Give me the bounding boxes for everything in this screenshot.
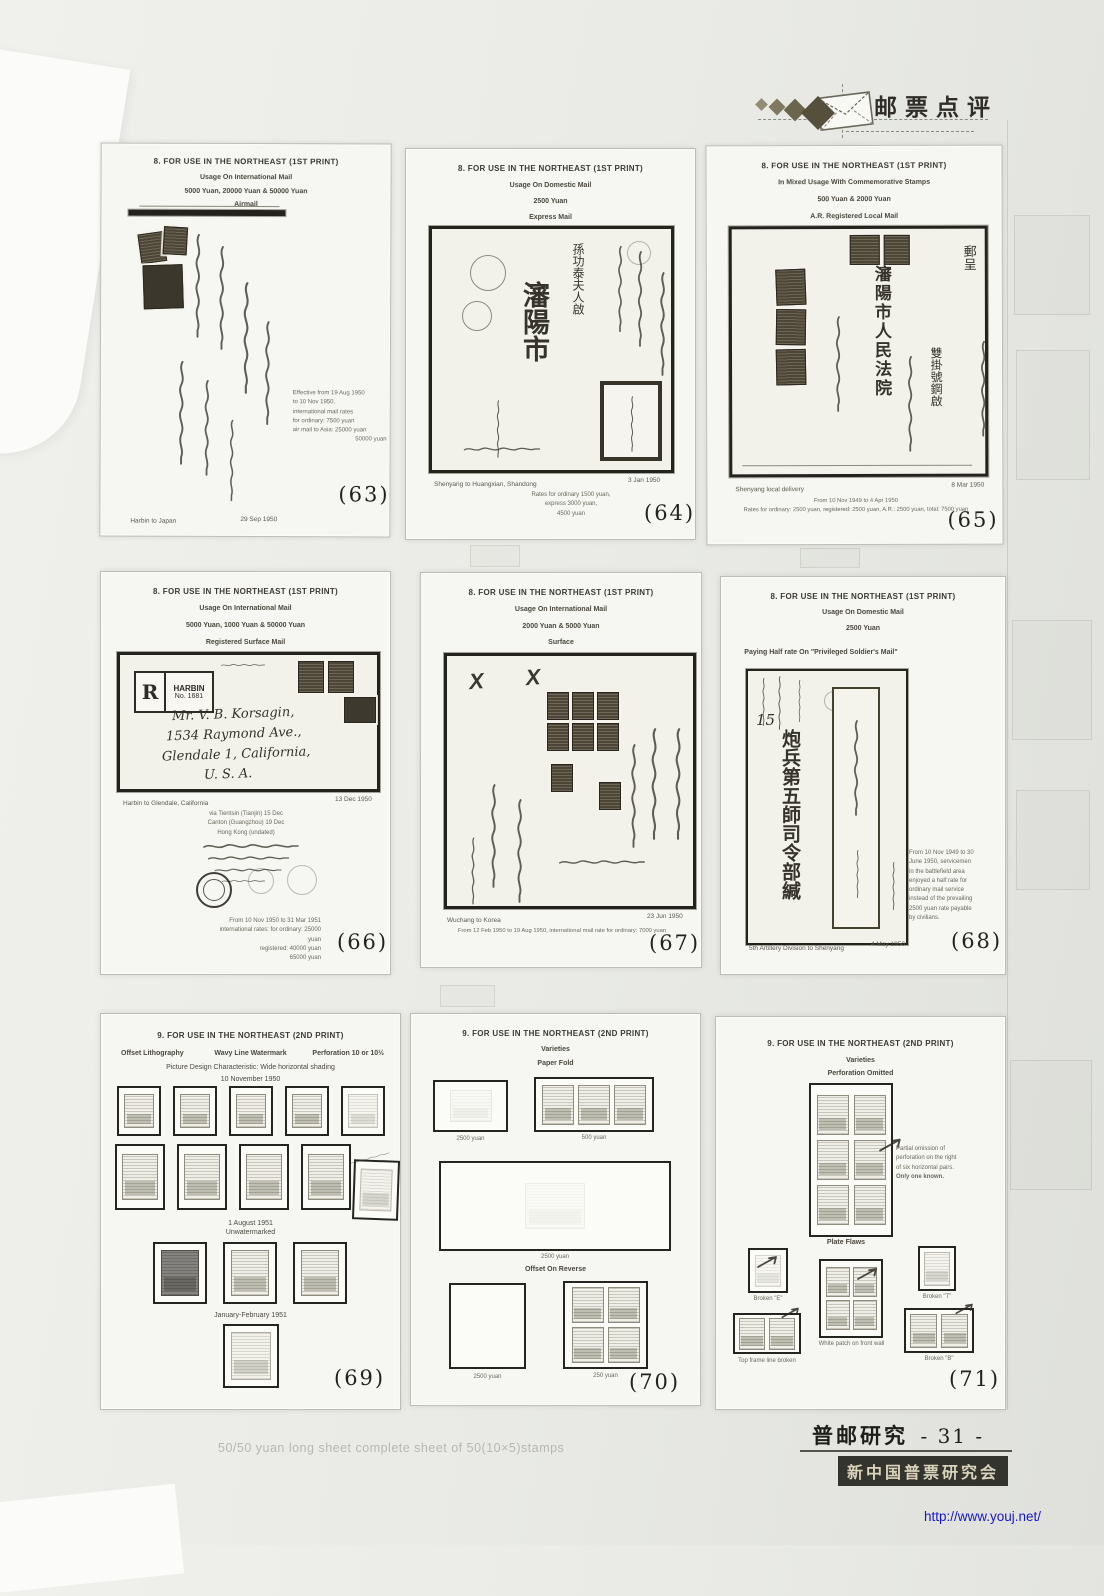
flaw-box-4 bbox=[733, 1313, 801, 1354]
address-panel bbox=[832, 687, 880, 929]
variety-box-perf-omitted bbox=[809, 1083, 893, 1237]
stamp bbox=[359, 1168, 392, 1211]
cover-64: 瀋陽市 孫功泰夫人啟 bbox=[429, 226, 674, 473]
flaw-label: Broken "B" bbox=[906, 1356, 972, 1362]
album-page-64: 8. FOR USE IN THE NORTHEAST (1ST PRINT) … bbox=[405, 148, 696, 540]
stamp bbox=[578, 1085, 610, 1125]
stamp bbox=[292, 1094, 322, 1128]
stamp bbox=[184, 1154, 220, 1200]
page-edge-shadow bbox=[1007, 120, 1008, 1410]
rate-note: From 10 Nov 1950 to 31 Mar 1951 internat… bbox=[216, 917, 321, 963]
page-subtitle: Perforation Omitted bbox=[716, 1070, 1005, 1077]
figure-number: (71) bbox=[949, 1367, 1000, 1391]
variety-box-paperfold-1 bbox=[433, 1080, 508, 1132]
stamp-mount bbox=[301, 1144, 351, 1210]
postmark bbox=[196, 872, 232, 908]
masthead-title: 邮票点评 bbox=[874, 88, 998, 122]
page-subtitle: Usage On International Mail bbox=[101, 605, 390, 612]
page-title: 8. FOR USE IN THE NORTHEAST (1ST PRINT) bbox=[102, 156, 391, 166]
address-line bbox=[742, 465, 972, 467]
stamp bbox=[572, 1327, 604, 1363]
page-subtitle: Varieties bbox=[411, 1046, 700, 1053]
stamp bbox=[163, 226, 189, 255]
page-subtitle: Varieties bbox=[716, 1057, 1005, 1064]
page-subtitle: Airmail bbox=[101, 200, 390, 208]
stamp bbox=[817, 1185, 849, 1225]
stamp bbox=[924, 1252, 950, 1286]
stamp bbox=[161, 1250, 199, 1296]
postmark bbox=[248, 868, 274, 894]
figure-number: (70) bbox=[629, 1370, 680, 1394]
caption-origin: Harbin to Japan bbox=[130, 518, 176, 525]
variety-box-offset-2 bbox=[563, 1281, 648, 1369]
page-subtitle: Usage On International Mail bbox=[421, 606, 701, 613]
flaw-box-2 bbox=[918, 1246, 956, 1291]
page-subtitle: Usage On International Mail bbox=[102, 173, 391, 181]
issue-date-1: 10 November 1950 bbox=[101, 1076, 400, 1083]
stamp-mount bbox=[153, 1242, 207, 1304]
stamp-mount bbox=[285, 1086, 329, 1136]
album-page-66: 8. FOR USE IN THE NORTHEAST (1ST PRINT) … bbox=[100, 571, 391, 975]
stamp bbox=[776, 349, 807, 386]
stamp bbox=[854, 1095, 886, 1135]
album-page-67: 8. FOR USE IN THE NORTHEAST (1ST PRINT) … bbox=[420, 572, 702, 968]
cover-main-characters: 瀋陽市人民法院 bbox=[872, 265, 890, 465]
value-label: 500 yuan bbox=[534, 1135, 654, 1141]
album-page-70: 9. FOR USE IN THE NORTHEAST (2ND PRINT) … bbox=[410, 1013, 701, 1406]
showthrough-caption: 50/50 yuan long sheet complete sheet of … bbox=[218, 1441, 564, 1455]
section-heading: Offset On Reverse bbox=[411, 1266, 700, 1273]
page-subtitle: 2500 Yuan bbox=[406, 198, 695, 205]
stamp bbox=[551, 764, 573, 792]
stamp-mount bbox=[352, 1159, 400, 1221]
value-label: 2500 yuan bbox=[433, 1136, 508, 1142]
page-subtitle: 500 Yuan & 2000 Yuan bbox=[707, 196, 1002, 204]
page-subtitle: A.R. Registered Local Mail bbox=[707, 213, 1002, 221]
site-url-link[interactable]: http://www.youj.net/ bbox=[924, 1509, 1041, 1524]
flaw-label: White patch on front wall bbox=[804, 1341, 899, 1347]
stamp bbox=[301, 1250, 339, 1296]
sender-characters: 炮兵第五師司令部緘 bbox=[780, 729, 799, 941]
caption-origin: Shenyang to Huangxian, Shandong bbox=[434, 481, 537, 488]
page-title: 8. FOR USE IN THE NORTHEAST (1ST PRINT) bbox=[406, 164, 695, 173]
stamp bbox=[941, 1314, 968, 1348]
showthrough-ghost bbox=[440, 985, 495, 1007]
caption-date: 29 Sep 1950 bbox=[240, 516, 277, 523]
stamp bbox=[328, 661, 354, 693]
rate-note: Effective from 19 Aug 1950 to 10 Nov 195… bbox=[293, 389, 387, 445]
caption-date: 23 Jun 1950 bbox=[647, 913, 683, 920]
showthrough-ghost bbox=[1014, 215, 1090, 315]
cover-addressee-characters: 孫功泰夫人啟 bbox=[572, 243, 584, 393]
cover-registered-characters: 雙掛號鋼啟 bbox=[930, 347, 942, 457]
stamp bbox=[547, 723, 569, 751]
showthrough-ghost bbox=[1012, 620, 1092, 740]
flaw-label: Broken "E" bbox=[740, 1296, 796, 1302]
issue-date-2: 1 August 1951 bbox=[101, 1220, 400, 1227]
figure-number: (69) bbox=[334, 1366, 385, 1390]
album-page-65: 8. FOR USE IN THE NORTHEAST (1ST PRINT) … bbox=[705, 145, 1003, 546]
society-name-badge: 新中国普票研究会 bbox=[838, 1456, 1008, 1486]
stamp bbox=[597, 692, 619, 720]
caption-origin: Shenyang local delivery bbox=[735, 486, 804, 493]
diamond-icon bbox=[769, 99, 786, 116]
variety-box-paperfold-3 bbox=[439, 1161, 671, 1251]
caption-origin: Wuchang to Korea bbox=[447, 917, 501, 924]
cover-right-characters: 郵呈 bbox=[962, 245, 975, 305]
footer-rule bbox=[800, 1450, 1012, 1452]
stamp bbox=[450, 1090, 492, 1122]
stamp bbox=[608, 1287, 640, 1323]
stamp bbox=[826, 1300, 850, 1330]
stamp bbox=[572, 723, 594, 751]
showthrough-ghost bbox=[470, 545, 520, 567]
address-line-3: Glendale 1, California, bbox=[162, 744, 311, 764]
variety-box-paperfold-2 bbox=[534, 1077, 654, 1132]
postmark bbox=[462, 301, 492, 331]
stamp bbox=[776, 309, 807, 345]
showthrough-ghost bbox=[800, 548, 860, 568]
stamp bbox=[308, 1154, 344, 1200]
stamp bbox=[124, 1094, 154, 1128]
album-page-71: 9. FOR USE IN THE NORTHEAST (2ND PRINT) … bbox=[715, 1016, 1006, 1410]
showthrough-ghost bbox=[1016, 790, 1090, 890]
value-label: 2500 yuan bbox=[439, 1254, 671, 1260]
stamp bbox=[344, 697, 376, 723]
variety-box-offset-1 bbox=[449, 1283, 526, 1369]
page-subtitle: Registered Surface Mail bbox=[101, 639, 390, 646]
stamp bbox=[180, 1094, 210, 1128]
stamp bbox=[817, 1140, 849, 1180]
album-page-63: 8. FOR USE IN THE NORTHEAST (1ST PRINT) … bbox=[99, 142, 391, 537]
album-page-68: 8. FOR USE IN THE NORTHEAST (1ST PRINT) … bbox=[720, 576, 1006, 975]
page-title: 9. FOR USE IN THE NORTHEAST (2ND PRINT) bbox=[101, 1031, 400, 1040]
scanned-journal-page: { "scan": { "masthead": { "title": "邮票点评… bbox=[0, 0, 1104, 1545]
stamp-mount bbox=[341, 1086, 385, 1136]
stamp bbox=[608, 1327, 640, 1363]
cover-66: R HARBIN No. 1681 Mr. V. B. Korsagin, 15… bbox=[117, 652, 380, 792]
stamp bbox=[572, 692, 594, 720]
showthrough-ghost bbox=[1010, 1060, 1092, 1190]
watermark-note: Unwatermarked bbox=[101, 1229, 400, 1236]
address-line-2: 1534 Raymond Ave., bbox=[166, 725, 302, 745]
stamp bbox=[298, 661, 324, 693]
address-line-4: U. S. A. bbox=[204, 766, 253, 783]
diamond-icon bbox=[755, 98, 768, 111]
stamp bbox=[854, 1185, 886, 1225]
stamp-block bbox=[547, 692, 619, 751]
stamp bbox=[122, 1154, 158, 1200]
stamp bbox=[853, 1300, 877, 1330]
cover-city-characters: 瀋陽市 bbox=[520, 281, 547, 461]
spec-design: Picture Design Characteristic: Wide hori… bbox=[101, 1064, 400, 1071]
stamp bbox=[826, 1267, 850, 1297]
stamp bbox=[817, 1095, 849, 1135]
stamp bbox=[769, 1318, 795, 1350]
express-label-frame bbox=[600, 381, 662, 461]
stamp bbox=[910, 1314, 937, 1348]
cover-65: 瀋陽市人民法院 郵呈 雙掛號鋼啟 bbox=[729, 226, 989, 478]
postmark bbox=[470, 255, 506, 291]
figure-number: (68) bbox=[951, 929, 1002, 953]
figure-number: (63) bbox=[338, 482, 389, 506]
stamp-mount bbox=[173, 1086, 217, 1136]
stamp bbox=[547, 692, 569, 720]
rate-note: From 10 Nov 1949 to 30 June 1950, servic… bbox=[909, 849, 995, 923]
journal-title: 普邮研究 bbox=[812, 1425, 908, 1448]
variety-note: Partial omission of perforation on the r… bbox=[896, 1145, 976, 1182]
stamp-mount bbox=[177, 1144, 227, 1210]
stamp bbox=[231, 1250, 269, 1296]
page-title: 8. FOR USE IN THE NORTHEAST (1ST PRINT) bbox=[421, 588, 701, 597]
value-label: 2500 yuan bbox=[449, 1374, 526, 1380]
stamp-mount bbox=[223, 1324, 279, 1388]
cover-63 bbox=[128, 210, 285, 217]
stamp-mount bbox=[293, 1242, 347, 1304]
figure-number: (67) bbox=[649, 931, 700, 955]
stamp bbox=[850, 235, 880, 265]
stamp-mount bbox=[229, 1086, 273, 1136]
stamp bbox=[597, 723, 619, 751]
album-page-69: 9. FOR USE IN THE NORTHEAST (2ND PRINT) … bbox=[100, 1013, 401, 1410]
page-title: 8. FOR USE IN THE NORTHEAST (1ST PRINT) bbox=[101, 587, 390, 596]
handwritten-cross-marks: X X bbox=[468, 663, 559, 695]
address-line-1: Mr. V. B. Korsagin, bbox=[172, 705, 295, 724]
page-subtitle: 2500 Yuan bbox=[721, 625, 1005, 632]
page-title: 9. FOR USE IN THE NORTHEAST (2ND PRINT) bbox=[411, 1029, 700, 1038]
journal-page-line: 普邮研究 - 31 - bbox=[812, 1420, 984, 1450]
page-subtitle: 5000 Yuan, 20000 Yuan & 50000 Yuan bbox=[102, 187, 391, 195]
cover-68: 15 炮兵第五師司令部緘 bbox=[746, 669, 908, 945]
page-subtitle: Usage On Domestic Mail bbox=[721, 609, 1005, 616]
flaw-label: Top frame line broken bbox=[730, 1358, 804, 1364]
stamp bbox=[599, 782, 621, 810]
stamp-mount bbox=[117, 1086, 161, 1136]
stamp bbox=[236, 1094, 266, 1128]
figure-number: (66) bbox=[337, 930, 388, 954]
caption-date: 13 Dec 1950 bbox=[335, 796, 372, 803]
showthrough-ghost bbox=[1016, 350, 1090, 480]
stamp-mount bbox=[115, 1144, 165, 1210]
page-title: 8. FOR USE IN THE NORTHEAST (1ST PRINT) bbox=[721, 592, 1005, 601]
rate-note: Rates for ordinary 1500 yuan, express 30… bbox=[501, 491, 641, 519]
postmark bbox=[287, 865, 317, 895]
page-subtitle: 5000 Yuan, 1000 Yuan & 50000 Yuan bbox=[101, 622, 390, 629]
page-subtitle: Usage On Domestic Mail bbox=[406, 182, 695, 189]
caption-origin: 5th Artillery Division to Shenyang bbox=[749, 945, 844, 952]
flaw-label: Broken "T" bbox=[912, 1294, 962, 1300]
page-subtitle: 2000 Yuan & 5000 Yuan bbox=[421, 623, 701, 630]
stamp-mount bbox=[223, 1242, 277, 1304]
figure-number: (64) bbox=[644, 501, 695, 525]
route-note: via Tientsin (Tianjin) 15 Dec Canton (Gu… bbox=[161, 810, 331, 838]
rate-note: From 12 Feb 1950 to 19 Aug 1950, interna… bbox=[441, 927, 683, 936]
stamp bbox=[231, 1332, 271, 1380]
registration-number: No. 1681 bbox=[175, 693, 203, 700]
spec-perforation: Perforation 10 or 10½ bbox=[312, 1050, 384, 1057]
page-subtitle: Paying Half rate On "Privileged Soldier'… bbox=[731, 649, 911, 656]
stamp bbox=[884, 235, 910, 265]
stamp bbox=[542, 1085, 574, 1125]
section-heading: Plate Flaws bbox=[776, 1239, 916, 1246]
masthead-dashed-line bbox=[846, 131, 974, 132]
stamp bbox=[775, 269, 806, 306]
registration-r: R bbox=[136, 673, 166, 711]
page-title: 9. FOR USE IN THE NORTHEAST (2ND PRINT) bbox=[716, 1039, 1005, 1048]
cover-67: X X bbox=[444, 653, 696, 909]
caption-date: 3 Jan 1950 bbox=[628, 477, 660, 484]
page-subtitle: Paper Fold bbox=[411, 1060, 700, 1067]
page-subtitle: Surface bbox=[421, 639, 701, 646]
registration-city: HARBIN bbox=[173, 684, 204, 693]
corner-highlight bbox=[0, 1484, 184, 1596]
journal-page-number: - 31 - bbox=[920, 1424, 984, 1448]
stamp bbox=[246, 1154, 282, 1200]
stamp-mount bbox=[239, 1144, 289, 1210]
registration-label: R HARBIN No. 1681 bbox=[134, 671, 214, 713]
issue-date-3: January-February 1951 bbox=[101, 1312, 400, 1319]
caption-date: 4 May 1950 bbox=[871, 941, 905, 948]
stamp bbox=[614, 1085, 646, 1125]
caption-date: 8 Mar 1950 bbox=[951, 482, 984, 489]
figure-number: (65) bbox=[947, 508, 998, 532]
stamp bbox=[143, 264, 184, 309]
stamp bbox=[525, 1183, 585, 1229]
stamp bbox=[739, 1318, 765, 1350]
page-subtitle: Express Mail bbox=[406, 214, 695, 221]
stamp bbox=[348, 1094, 378, 1128]
stamp bbox=[572, 1287, 604, 1323]
caption-origin: Harbin to Glendale, California bbox=[123, 800, 208, 807]
page-title: 8. FOR USE IN THE NORTHEAST (1ST PRINT) bbox=[707, 161, 1002, 171]
page-subtitle: In Mixed Usage With Commemorative Stamps bbox=[707, 179, 1002, 187]
